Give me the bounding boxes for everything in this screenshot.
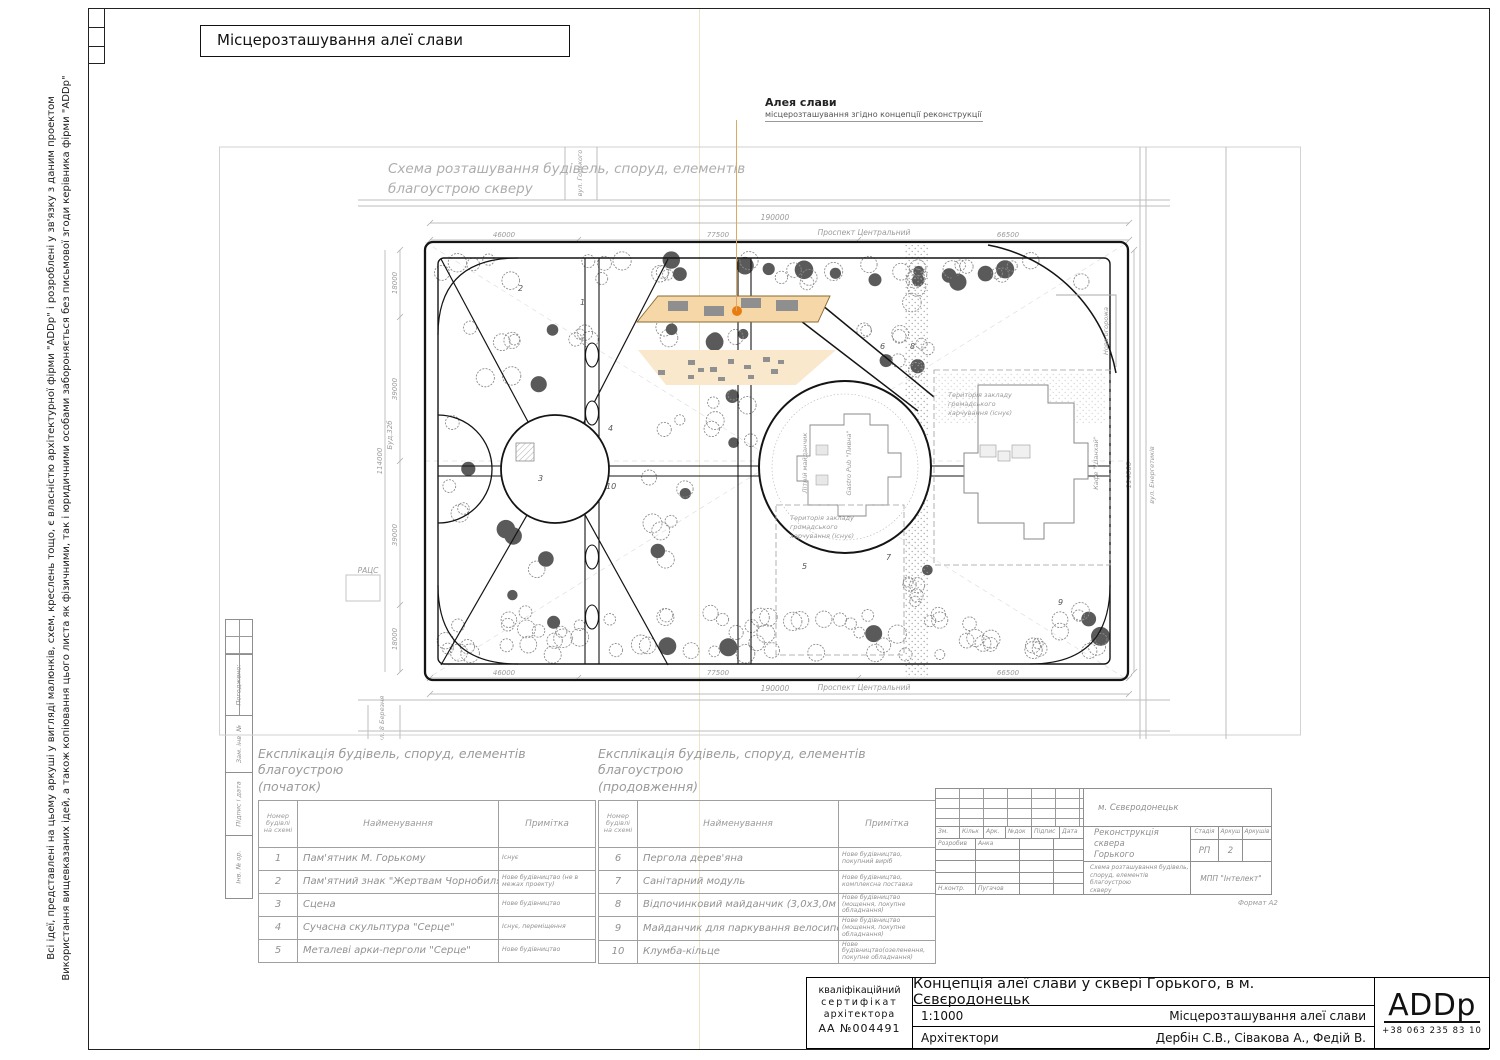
table-cell: 1: [259, 847, 298, 870]
tree-symbol: [502, 367, 520, 385]
table-cell: Відпочинковий майданчик (3,0х3,0м мощенн…: [638, 893, 839, 916]
table-cell: Нове будівництво (мощення, покупне облад…: [839, 893, 936, 916]
frame-corner-box: [88, 46, 105, 64]
sheet-frame-right: [1489, 8, 1490, 1049]
dim-v4: 18000: [391, 627, 399, 650]
tree-symbol: [643, 514, 662, 533]
tree-symbol: [519, 606, 532, 619]
tree-symbol: [651, 544, 665, 558]
stamp-drawing-name: Схема розташування будівель, споруд, еле…: [1084, 862, 1191, 894]
cafe-shanghai-label: Кафе "Шанхай": [1092, 436, 1100, 489]
dim-seg1-bottom: 46000: [493, 669, 516, 677]
sign-date-label: Підпис і дата: [235, 781, 243, 826]
tree-symbol: [963, 617, 977, 631]
architects-row: Архітектори Дербін С.В., Сівакова А., Фе…: [913, 1027, 1374, 1048]
copyright-strip: Всі ідеї, представлені на цьому аркуші у…: [44, 8, 74, 1048]
tree-symbol: [461, 462, 475, 476]
developed-value: Анка: [976, 839, 1020, 849]
plan-marker-2: 2: [518, 284, 523, 293]
stamp-empty-row: [936, 861, 1083, 872]
building-detail: [980, 445, 996, 457]
tree-symbol: [609, 644, 622, 657]
tree-symbol: [706, 412, 724, 430]
tree-symbol: [892, 354, 906, 368]
drawing-name-line2: споруд, елементів благоустрою: [1090, 872, 1148, 887]
tree-symbol: [657, 422, 671, 436]
addp-logo: ADDp: [1384, 990, 1480, 1024]
tree-symbol: [978, 266, 994, 282]
logo-cell: ADDp +38 063 235 83 10: [1375, 978, 1489, 1048]
tree-symbol: [673, 267, 687, 281]
tree-symbol: [660, 609, 673, 622]
explication-title-2-line1: Експлікація будівель, споруд, елементів …: [598, 746, 866, 777]
table-cell: Нове будівництво: [499, 893, 596, 916]
dim-v2: 39000: [391, 377, 399, 400]
table-cell: Нове будівництво (мощення, покупне облад…: [839, 917, 936, 940]
table-cell: Санітарний модуль: [638, 870, 839, 893]
table-cell: 4: [259, 916, 298, 939]
table-cell: Майданчик для паркування велосипедів: [638, 917, 839, 940]
tree-symbol: [448, 254, 466, 272]
stage-value: РП: [1191, 840, 1219, 861]
tree-symbol: [675, 415, 685, 425]
dim-seg2-top: 77500: [707, 231, 730, 239]
dim-seg3-bottom: 66500: [997, 669, 1020, 677]
tree-symbol: [960, 260, 973, 273]
stamp-empty-row: [936, 873, 1083, 884]
stamp-developed-row: Розробив Анка: [936, 839, 1083, 850]
table-row: 8Відпочинковий майданчик (3,0х3,0м мощен…: [599, 893, 936, 916]
tree-symbol: [760, 608, 778, 626]
sheets-value: [1243, 840, 1271, 861]
plan-title-line2: благоустрою скверу: [388, 180, 745, 200]
table-cell: Металеві арки-перголи "Серце": [298, 939, 499, 962]
tree-symbol: [507, 590, 517, 600]
dim-v1: 18000: [391, 271, 399, 294]
street-bottom-label: Проспект Центральний: [818, 683, 911, 692]
table-cell: Нове будівництво: [499, 939, 596, 962]
dim-total-bottom: 190000: [761, 684, 790, 693]
tree-symbol: [554, 629, 573, 648]
tree-symbol: [996, 260, 1014, 278]
tree-symbol: [757, 625, 775, 643]
tree-symbol: [680, 488, 691, 499]
tree-symbol: [728, 437, 739, 448]
table-row: 9Майданчик для паркування велосипедівНов…: [599, 917, 936, 940]
table-cell: Існує: [499, 847, 596, 870]
tree-symbol: [613, 252, 631, 270]
street-bottom-left-label: вул. 8 Березня: [378, 696, 386, 740]
dim-total-left: 114000: [376, 447, 384, 474]
plan-marker-1: 1: [580, 298, 585, 307]
annotation-title: Алея слави: [765, 96, 995, 109]
plan-marker-5: 5: [802, 562, 807, 571]
title-block-main: Концепція алеї слави у сквері Горького, …: [913, 978, 1375, 1048]
territory-label-2: Територія закладу: [948, 391, 1012, 399]
drawing-name-line1: Схема розташування будівель,: [1090, 864, 1189, 871]
annotation-leader-line: [736, 120, 737, 311]
copyright-line-1: Всі ідеї, представлені на цьому аркуші у…: [44, 8, 59, 1048]
new-fence-label: Нова огорожа: [1102, 307, 1110, 355]
tree-symbol: [544, 646, 561, 663]
col-header-number: Номер будівлі на схемі: [259, 800, 298, 847]
plan-marker-6: 6: [880, 342, 885, 351]
sheet-value: 2: [1219, 840, 1243, 861]
territory-label-1b: громадського: [790, 523, 838, 531]
stamp-city: м. Сєвєродонецьк: [1084, 789, 1271, 827]
table-row: 3СценаНове будівництво: [259, 893, 596, 916]
tree-symbol: [652, 522, 670, 540]
tree-symbol: [631, 635, 650, 654]
tree-symbol: [556, 626, 567, 637]
table-cell: Сцена: [298, 893, 499, 916]
col-header-note: Примітка: [499, 800, 596, 847]
col-header-name: Найменування: [298, 800, 499, 847]
plan-frame: [220, 147, 1301, 735]
alley-annotation: Алея слави місцерозташування згідно конц…: [765, 96, 995, 122]
table-cell: 2: [259, 870, 298, 893]
inv-number-label: Інв. № ор.: [235, 850, 243, 883]
sheet-title-value: Місцерозташування алеї слави: [1169, 1009, 1374, 1023]
architects-names: Дербін С.В., Сівакова А., Федій В.: [1156, 1031, 1374, 1045]
tree-symbol: [854, 627, 865, 638]
central-plaza: [501, 415, 609, 523]
table-row: 6Пергола дерев'янаНове будівництво, поку…: [599, 847, 936, 870]
explication-title-1-line1: Експлікація будівель, споруд, елементів …: [258, 746, 526, 777]
col-doc: №док: [1006, 827, 1032, 837]
tree-symbol: [502, 618, 515, 631]
building-detail: [816, 475, 828, 485]
table-cell: Нове будівництво, комплексна поставка: [839, 870, 936, 893]
gastro-pub-label: Gastro Pub "Пивна": [845, 430, 853, 495]
explication-title-2-line2: (продовження): [598, 779, 698, 794]
tree-symbol: [1052, 612, 1068, 628]
table-row: 2Пам'ятний знак "Жертвам Чорнобиля"Нове …: [259, 870, 596, 893]
table-cell: 5: [259, 939, 298, 962]
alley-of-glory-area-2: [638, 350, 836, 385]
project-title: Концепція алеї слави у сквері Горького, …: [913, 978, 1374, 1006]
plan-title-line1: Схема розташування будівель, споруд, еле…: [388, 160, 745, 180]
alley-leader-dot: [732, 306, 742, 316]
certificate-line3: архітектора: [807, 1009, 912, 1021]
main-title-block: кваліфікаційний сертифікат архітектора А…: [806, 977, 1490, 1049]
tree-symbol: [571, 628, 589, 646]
scale-row: 1:1000 Місцерозташування алеї слави: [913, 1006, 1374, 1027]
tree-symbol: [932, 612, 948, 628]
tree-symbol: [665, 515, 677, 527]
stamp-project-line1: Реконструкція сквера: [1094, 828, 1190, 849]
table-cell: 8: [599, 893, 638, 916]
stamp-revision-grid: [936, 789, 1083, 827]
table-cell: Пергола дерев'яна: [638, 847, 839, 870]
tree-symbol: [739, 397, 756, 414]
tree-symbol: [816, 611, 832, 627]
plan-marker-4: 4: [608, 424, 613, 433]
tree-symbol: [434, 265, 449, 280]
sheet-label: Аркуш: [1219, 827, 1243, 839]
sheet-frame-left: [88, 8, 89, 1049]
dim-seg1-top: 46000: [493, 231, 516, 239]
tree-symbol: [604, 614, 616, 626]
tree-symbol: [726, 390, 739, 403]
table-row: 1Пам'ятник М. ГорькомуІснує: [259, 847, 596, 870]
stamp-ncontrol-row: Н.контр. Пугачов: [936, 884, 1083, 894]
tree-symbol: [596, 273, 608, 285]
explication-title-1: Експлікація будівель, споруд, елементів …: [258, 746, 588, 795]
certificate-number: АА №004491: [807, 1022, 912, 1036]
sheets-label: Аркушів: [1243, 827, 1271, 839]
col-header-note: Примітка: [839, 800, 936, 847]
tree-symbol: [775, 271, 787, 283]
certificate-cell: кваліфікаційний сертифікат архітектора А…: [807, 978, 913, 1048]
table-cell: 9: [599, 917, 638, 940]
tree-symbol: [892, 330, 906, 344]
tree-symbol: [729, 625, 743, 639]
site-plan: 190000 46000 77500 Проспект Центральний …: [218, 145, 1303, 740]
approval-box-signdate: Підпис і дата: [225, 772, 253, 836]
territory-label-1c: харчування (існує): [789, 532, 854, 540]
tree-symbol: [443, 480, 456, 493]
drawing-name-line3: скверу: [1090, 887, 1112, 894]
table-row: 4Сучасна скульптура "Серце"Існує, перемі…: [259, 916, 596, 939]
copyright-line-2: Використання вищевказаних ідей, а також …: [59, 8, 74, 1048]
plan-marker-10: 10: [606, 482, 616, 491]
scale-value: 1:1000: [913, 1009, 1169, 1023]
tree-symbol: [532, 625, 545, 638]
tree-symbol: [763, 263, 775, 275]
tree-symbol: [861, 256, 877, 272]
frame-corner-box: [88, 27, 105, 47]
tree-symbol: [500, 639, 513, 652]
plan-marker-3: 3: [538, 474, 543, 483]
title-stamp: Зм. Кільк Арк. №док Підпис Дата Розробив…: [935, 788, 1272, 895]
street-top-label: Проспект Центральний: [818, 228, 911, 237]
stage-symbol: [516, 443, 534, 461]
tree-symbol: [502, 272, 520, 290]
tree-symbol: [867, 644, 884, 661]
tree-symbol: [736, 644, 755, 663]
tree-symbol: [683, 643, 699, 659]
tree-symbol: [547, 616, 560, 629]
table-cell: Пам'ятник М. Горькому: [298, 847, 499, 870]
summer-terrace-label: Літній майданчик: [801, 433, 809, 495]
tree-symbol: [505, 527, 522, 544]
annotation-subtitle: місцерозташування згідно концепції рекон…: [765, 110, 983, 122]
tree-symbol: [791, 612, 809, 630]
approval-box-inv: Інв. № ор.: [225, 835, 253, 899]
street-right-label: вул. Енергетиків: [1148, 446, 1156, 504]
tree-symbol: [582, 255, 595, 268]
col-header-number: Номер будівлі на схемі: [599, 800, 638, 847]
dim-seg3-top: 66500: [997, 231, 1020, 239]
ncontrol-value: Пугачов: [976, 884, 1020, 894]
tree-symbol: [476, 369, 494, 387]
building-detail: [1012, 445, 1030, 458]
tree-symbol: [830, 268, 841, 279]
tree-symbol: [452, 619, 465, 632]
tree-symbol: [716, 613, 728, 625]
building-detail: [816, 445, 828, 455]
frame-corner-box: [88, 8, 105, 28]
col-zm: Зм.: [936, 827, 960, 837]
table-row: 7Санітарний модульНове будівництво, комп…: [599, 870, 936, 893]
dim-seg2-bottom: 77500: [707, 669, 730, 677]
stamp-right: м. Сєвєродонецьк Реконструкція сквера Го…: [1084, 789, 1271, 894]
drawing-sheet: Всі ідеї, представлені на цьому аркуші у…: [0, 0, 1500, 1060]
building-32b-label: Буд.32б: [386, 420, 394, 450]
tree-symbol: [451, 505, 469, 523]
plan-marker-7: 7: [886, 553, 892, 562]
tree-symbol: [493, 334, 510, 351]
tree-symbol: [509, 334, 520, 345]
phone-number: +38 063 235 83 10: [1382, 1026, 1482, 1036]
stage-label: Стадія: [1191, 827, 1219, 839]
certificate-line2: сертифікат: [807, 997, 912, 1009]
certificate-line1: кваліфікаційний: [807, 985, 912, 997]
table-cell: 10: [599, 940, 638, 963]
territory-label-2c: харчування (існує): [947, 409, 1012, 417]
tree-symbol: [808, 644, 825, 661]
plan-title: Схема розташування будівель, споруд, еле…: [388, 160, 745, 199]
stamp-columns-row: Зм. Кільк Арк. №док Підпис Дата: [936, 827, 1083, 838]
table-cell: Нове будівництво (не в межах проекту): [499, 870, 596, 893]
plan-marker-9: 9: [1058, 598, 1063, 607]
tree-symbol: [708, 332, 722, 346]
sheet-frame-bottom: [88, 1049, 1489, 1050]
table-cell: Клумба-кільце: [638, 940, 839, 963]
tree-symbol: [504, 332, 520, 348]
plan-marker-8: 8: [910, 342, 915, 351]
sheet-title-box: Місцерозташування алеї слави: [200, 25, 570, 57]
explication-table-1: Експлікація будівель, споруд, елементів …: [258, 746, 588, 963]
racs-label: РАЦС: [358, 566, 379, 575]
dim-total-top: 190000: [761, 213, 790, 222]
explication-title-2: Експлікація будівель, споруд, елементів …: [598, 746, 928, 795]
tree-symbol: [703, 605, 718, 620]
tree-symbol: [1074, 274, 1089, 289]
tree-symbol: [869, 273, 882, 286]
tree-symbol: [538, 551, 554, 567]
table-cell: 6: [599, 847, 638, 870]
col-date: Дата: [1060, 827, 1082, 837]
stamp-stage-block: Стадія Аркуш Аркушів РП 2: [1191, 827, 1271, 861]
territory-label-2b: громадського: [948, 400, 996, 408]
tree-symbol: [751, 608, 769, 626]
tree-symbol: [935, 650, 945, 660]
table-cell: Пам'ятний знак "Жертвам Чорнобиля": [298, 870, 499, 893]
tree-symbol: [666, 324, 678, 336]
table-cell: 3: [259, 893, 298, 916]
col-ark: Арк.: [984, 827, 1006, 837]
architects-label: Архітектори: [913, 1031, 1156, 1045]
tree-symbol: [547, 324, 559, 336]
stamp-empty-row: [936, 850, 1083, 861]
table-cell: Нове будівництво, покупний виріб: [839, 847, 936, 870]
tree-symbol: [865, 625, 882, 642]
sheet-frame-top: [88, 8, 1489, 9]
tree-symbol: [520, 636, 537, 653]
stamp-left: Зм. Кільк Арк. №док Підпис Дата Розробив…: [936, 789, 1084, 894]
tree-symbol: [642, 470, 657, 485]
tree-symbol: [709, 646, 720, 657]
explication-title-1-line2: (початок): [258, 779, 321, 794]
tree-symbol: [708, 397, 719, 408]
tree-symbol: [663, 251, 680, 268]
tree-symbol: [764, 643, 779, 658]
dim-v3: 39000: [391, 523, 399, 546]
tree-symbol: [547, 633, 562, 648]
table-row: 10Клумба-кільцеНове будівництво(озеленен…: [599, 940, 936, 963]
explication-table-2: Експлікація будівель, споруд, елементів …: [598, 746, 928, 964]
table-cell: Існує, переміщення: [499, 916, 596, 939]
col-kilk: Кільк: [960, 827, 984, 837]
col-header-name: Найменування: [638, 800, 839, 847]
tree-symbol: [483, 254, 494, 265]
tree-symbol: [1023, 253, 1039, 269]
tree-symbol: [951, 276, 963, 288]
territory-label-1: Територія закладу: [790, 514, 854, 522]
table-cell: Нове будівництво(озеленення, покупне обл…: [839, 940, 936, 963]
tree-symbol: [531, 376, 547, 392]
table-row: 5Металеві арки-перголи "Серце"Нове будів…: [259, 939, 596, 962]
table-cell: Сучасна скульптура "Серце": [298, 916, 499, 939]
format-label: Формат А2: [1238, 899, 1278, 907]
building-detail: [998, 451, 1010, 461]
table-cell: 7: [599, 870, 638, 893]
col-sign: Підпис: [1032, 827, 1060, 837]
developed-label: Розробив: [936, 839, 976, 849]
stamp-project: Реконструкція сквера Горького: [1084, 827, 1191, 861]
tree-symbol: [862, 610, 874, 622]
stamp-project-line2: Горького: [1094, 850, 1190, 861]
tree-symbol: [719, 638, 737, 656]
ncontrol-label: Н.контр.: [936, 884, 976, 894]
stamp-firm: МПП "Інтелект": [1191, 862, 1271, 894]
